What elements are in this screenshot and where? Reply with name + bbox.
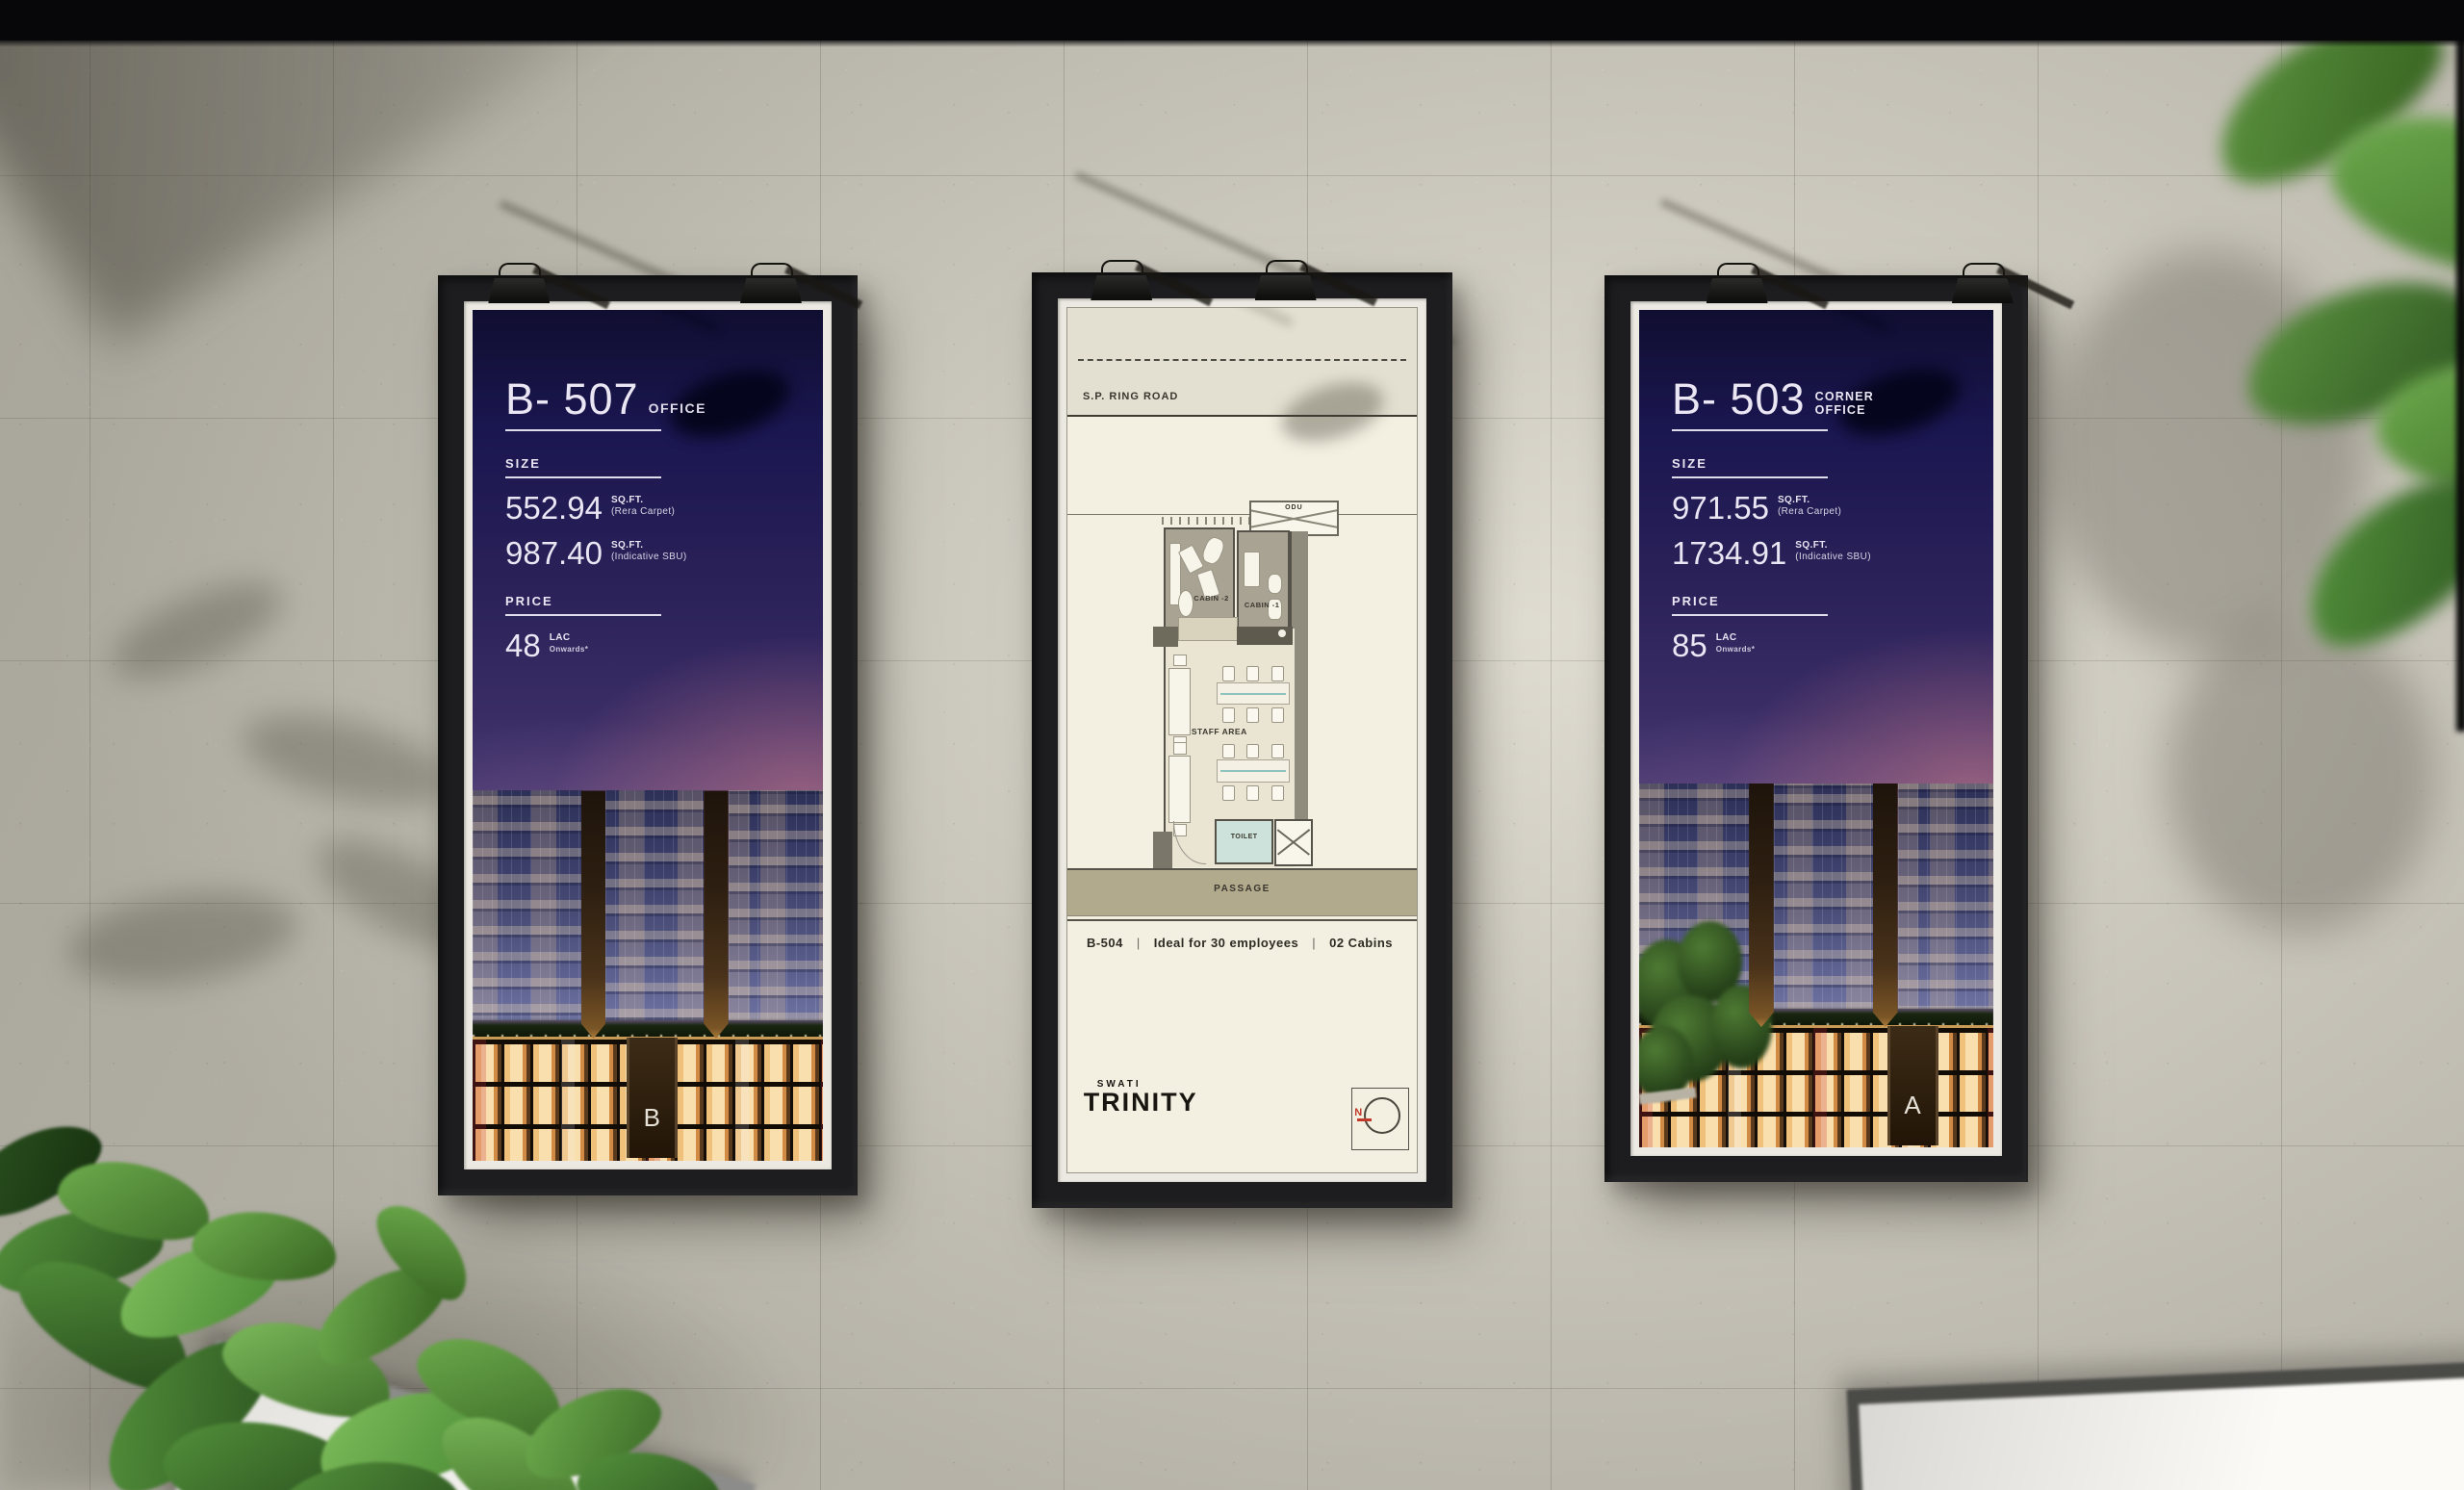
size-unit: SQ.FT. (Indicative SBU): [611, 537, 687, 564]
size-section: SIZE 552.94 SQ.FT. (Rera Carpet) 987.40: [505, 456, 706, 569]
compass-letter: N: [1354, 1107, 1362, 1118]
workstation-bank: [1217, 666, 1290, 721]
cabin-desk: [1244, 552, 1260, 586]
chair: [1271, 707, 1284, 723]
tower-core: B: [627, 1038, 678, 1158]
unit-type-line2: OFFICE: [1815, 403, 1866, 417]
size-unit: SQ.FT. (Rera Carpet): [1778, 492, 1841, 519]
size-row: 971.55 SQ.FT. (Rera Carpet): [1672, 492, 1874, 524]
compass-circle: [1364, 1097, 1400, 1134]
side-desk: [1168, 668, 1191, 735]
glass-facade: [605, 790, 704, 1019]
chair: [1222, 744, 1235, 759]
chair: [1246, 785, 1259, 801]
north-arrow-icon: N: [1351, 1088, 1409, 1150]
binder-clip-icon: [488, 263, 550, 309]
pylon: [704, 790, 728, 1038]
window-grill: [1162, 517, 1249, 525]
side-desk: [1168, 756, 1191, 823]
price-unit-text: LAC: [550, 632, 571, 643]
cabin-chair: [1268, 574, 1282, 593]
site-boundary-line: [1067, 514, 1417, 515]
road-centerline: [1078, 359, 1406, 361]
size-note: (Indicative SBU): [611, 552, 687, 562]
poster-floorplan-b504: S.P. RING ROAD ODU: [1032, 272, 1452, 1208]
size-unit-text: SQ.FT.: [611, 540, 644, 551]
size-unit: SQ.FT. (Rera Carpet): [611, 492, 675, 519]
unit-type: CORNER OFFICE: [1815, 390, 1874, 418]
clip-body: [1707, 278, 1768, 303]
road-label: S.P. RING ROAD: [1083, 391, 1178, 402]
divider-line: [1672, 614, 1828, 616]
entry-column: [1153, 832, 1172, 868]
unit-type-line1: CORNER: [1815, 390, 1874, 403]
poster-art: B- 507 OFFICE SIZE 552.94 SQ.FT. (Rera C…: [473, 310, 823, 1161]
size-unit-text: SQ.FT.: [611, 495, 644, 505]
price-section: PRICE 48 LAC Onwards*: [505, 594, 706, 661]
size-label: SIZE: [1672, 456, 1874, 471]
retail-podium: B: [473, 1037, 823, 1161]
divider-line: [505, 476, 661, 478]
clip-body: [1255, 275, 1317, 300]
price-value: 48: [505, 629, 541, 661]
glass-facade: [1774, 784, 1873, 1010]
unit-number: B- 503: [1672, 379, 1806, 421]
chair-row: [1217, 666, 1290, 680]
poster-b503: B- 503 CORNER OFFICE SIZE 971.55: [1604, 275, 2028, 1182]
price-label: PRICE: [1672, 594, 1874, 608]
cabin-count-text: 02 Cabins: [1329, 936, 1393, 950]
chair: [1246, 666, 1259, 681]
cabin-table-round: [1178, 590, 1193, 617]
chair: [1246, 744, 1259, 759]
cabin-2-label: CABIN -2: [1193, 594, 1229, 603]
price-row: 48 LAC Onwards*: [505, 629, 706, 661]
chair: [1271, 666, 1284, 681]
unit-type: OFFICE: [649, 400, 706, 416]
glass-facade: [473, 790, 581, 1019]
size-label: SIZE: [505, 456, 706, 471]
desk: [1217, 759, 1290, 783]
pantry-counter: [1237, 627, 1292, 645]
unit-title-row: B- 503 CORNER OFFICE: [1672, 379, 1874, 421]
tower-letter: B: [644, 1103, 661, 1133]
cabin-chair: [1178, 545, 1205, 575]
unit-info-row: B-504 | Ideal for 30 employees | 02 Cabi…: [1087, 936, 1393, 950]
section-line: [1067, 919, 1417, 921]
passage-label: PASSAGE: [1067, 884, 1417, 894]
price-note: Onwards*: [550, 645, 589, 654]
chair: [1222, 707, 1235, 723]
divider-line: [1672, 476, 1828, 478]
shaft-box: [1274, 819, 1313, 866]
size-value: 552.94: [505, 492, 603, 524]
unit-info: B- 507 OFFICE SIZE 552.94 SQ.FT. (Rera C…: [505, 379, 706, 661]
cabin-chair: [1200, 535, 1227, 567]
pylon: [581, 790, 605, 1038]
size-note: (Rera Carpet): [611, 506, 675, 517]
image-edge: [2456, 0, 2464, 732]
price-unit: LAC Onwards*: [550, 629, 589, 656]
size-row: 1734.91 SQ.FT. (Indicative SBU): [1672, 537, 1874, 569]
pylon: [1749, 784, 1774, 1027]
cabin-2-room: CABIN -2: [1164, 527, 1234, 629]
poster-art: B- 503 CORNER OFFICE SIZE 971.55: [1639, 310, 1993, 1147]
pylon: [1873, 784, 1898, 1027]
scene: B- 507 OFFICE SIZE 552.94 SQ.FT. (Rera C…: [0, 0, 2464, 1490]
floorplan-sheet: S.P. RING ROAD ODU: [1066, 307, 1418, 1173]
unit-info: B- 503 CORNER OFFICE SIZE 971.55: [1672, 379, 1874, 661]
chair: [1222, 666, 1235, 681]
cabin-1-label: CABIN -1: [1245, 601, 1280, 609]
toilet-room: TOILET: [1215, 819, 1273, 865]
chair-row: [1217, 707, 1290, 721]
poster-mat: B- 507 OFFICE SIZE 552.94 SQ.FT. (Rera C…: [464, 301, 832, 1169]
binder-clip-icon: [1255, 260, 1317, 306]
clip-body: [740, 278, 802, 303]
unit-number: B- 507: [505, 379, 639, 421]
workstation-bank: [1217, 744, 1290, 799]
odu-label: ODU: [1251, 504, 1337, 511]
price-unit: LAC Onwards*: [1716, 629, 1756, 656]
brand-name-text: TRINITY: [1084, 1090, 1198, 1117]
compass-needle: [1357, 1118, 1372, 1121]
binder-clip-icon: [1091, 260, 1152, 306]
price-row: 85 LAC Onwards*: [1672, 629, 1874, 661]
road-edge-line: [1067, 415, 1417, 417]
poster-mat: S.P. RING ROAD ODU: [1058, 298, 1426, 1182]
size-unit-text: SQ.FT.: [1778, 495, 1810, 505]
poster-b507: B- 507 OFFICE SIZE 552.94 SQ.FT. (Rera C…: [438, 275, 858, 1195]
size-value: 987.40: [505, 537, 603, 569]
desk: [1217, 682, 1290, 706]
toilet-label: TOILET: [1217, 834, 1271, 840]
price-section: PRICE 85 LAC Onwards*: [1672, 594, 1874, 661]
tower-render: B: [473, 790, 823, 1161]
divider-line: [1672, 429, 1828, 431]
size-note: (Indicative SBU): [1795, 552, 1871, 562]
size-section: SIZE 971.55 SQ.FT. (Rera Carpet) 1734.91: [1672, 456, 1874, 569]
staff-area-label: STAFF AREA: [1192, 727, 1247, 736]
size-row: 987.40 SQ.FT. (Indicative SBU): [505, 537, 706, 569]
size-unit-text: SQ.FT.: [1795, 540, 1828, 551]
chair-row: [1217, 785, 1290, 799]
sink: [1278, 629, 1286, 637]
separator: |: [1137, 936, 1141, 950]
size-value: 971.55: [1672, 492, 1769, 524]
poster-art: S.P. RING ROAD ODU: [1066, 307, 1418, 1173]
size-unit: SQ.FT. (Indicative SBU): [1795, 537, 1871, 564]
size-value: 1734.91: [1672, 537, 1786, 569]
chair: [1222, 785, 1235, 801]
size-row: 552.94 SQ.FT. (Rera Carpet): [505, 492, 706, 524]
tower-core: A: [1887, 1026, 1939, 1144]
binder-clip-icon: [1952, 263, 2014, 309]
chair: [1271, 744, 1284, 759]
price-label: PRICE: [505, 594, 706, 608]
binder-clip-icon: [1707, 263, 1768, 309]
chair-row: [1217, 744, 1290, 758]
clip-body: [1952, 278, 2014, 303]
brand-logo: SWATI TRINITY: [1084, 1079, 1198, 1117]
size-note: (Rera Carpet): [1778, 506, 1841, 517]
tower-glass: [473, 790, 823, 1019]
poster-mat: B- 503 CORNER OFFICE SIZE 971.55: [1630, 301, 2002, 1156]
price-unit-text: LAC: [1716, 632, 1737, 643]
storage-cabinet: [1153, 627, 1177, 647]
price-note: Onwards*: [1716, 645, 1756, 654]
tower-letter: A: [1904, 1091, 1921, 1120]
unit-code: B-504: [1087, 936, 1123, 950]
binder-clip-icon: [740, 263, 802, 309]
tower-render: A: [1639, 784, 1993, 1147]
divider-line: [505, 614, 661, 616]
chair: [1246, 707, 1259, 723]
top-black-band: [0, 0, 2464, 40]
clip-body: [488, 278, 550, 303]
price-value: 85: [1672, 629, 1707, 661]
capacity-text: Ideal for 30 employees: [1154, 936, 1298, 950]
separator: |: [1312, 936, 1316, 950]
clip-body: [1091, 275, 1152, 300]
glass-facade: [729, 790, 823, 1019]
reception-desk: [1178, 617, 1238, 641]
chair: [1271, 785, 1284, 801]
greenery-strip: [473, 1018, 823, 1039]
divider-line: [505, 429, 661, 431]
glass-facade: [1898, 784, 1993, 1010]
unit-title-row: B- 507 OFFICE: [505, 379, 706, 421]
